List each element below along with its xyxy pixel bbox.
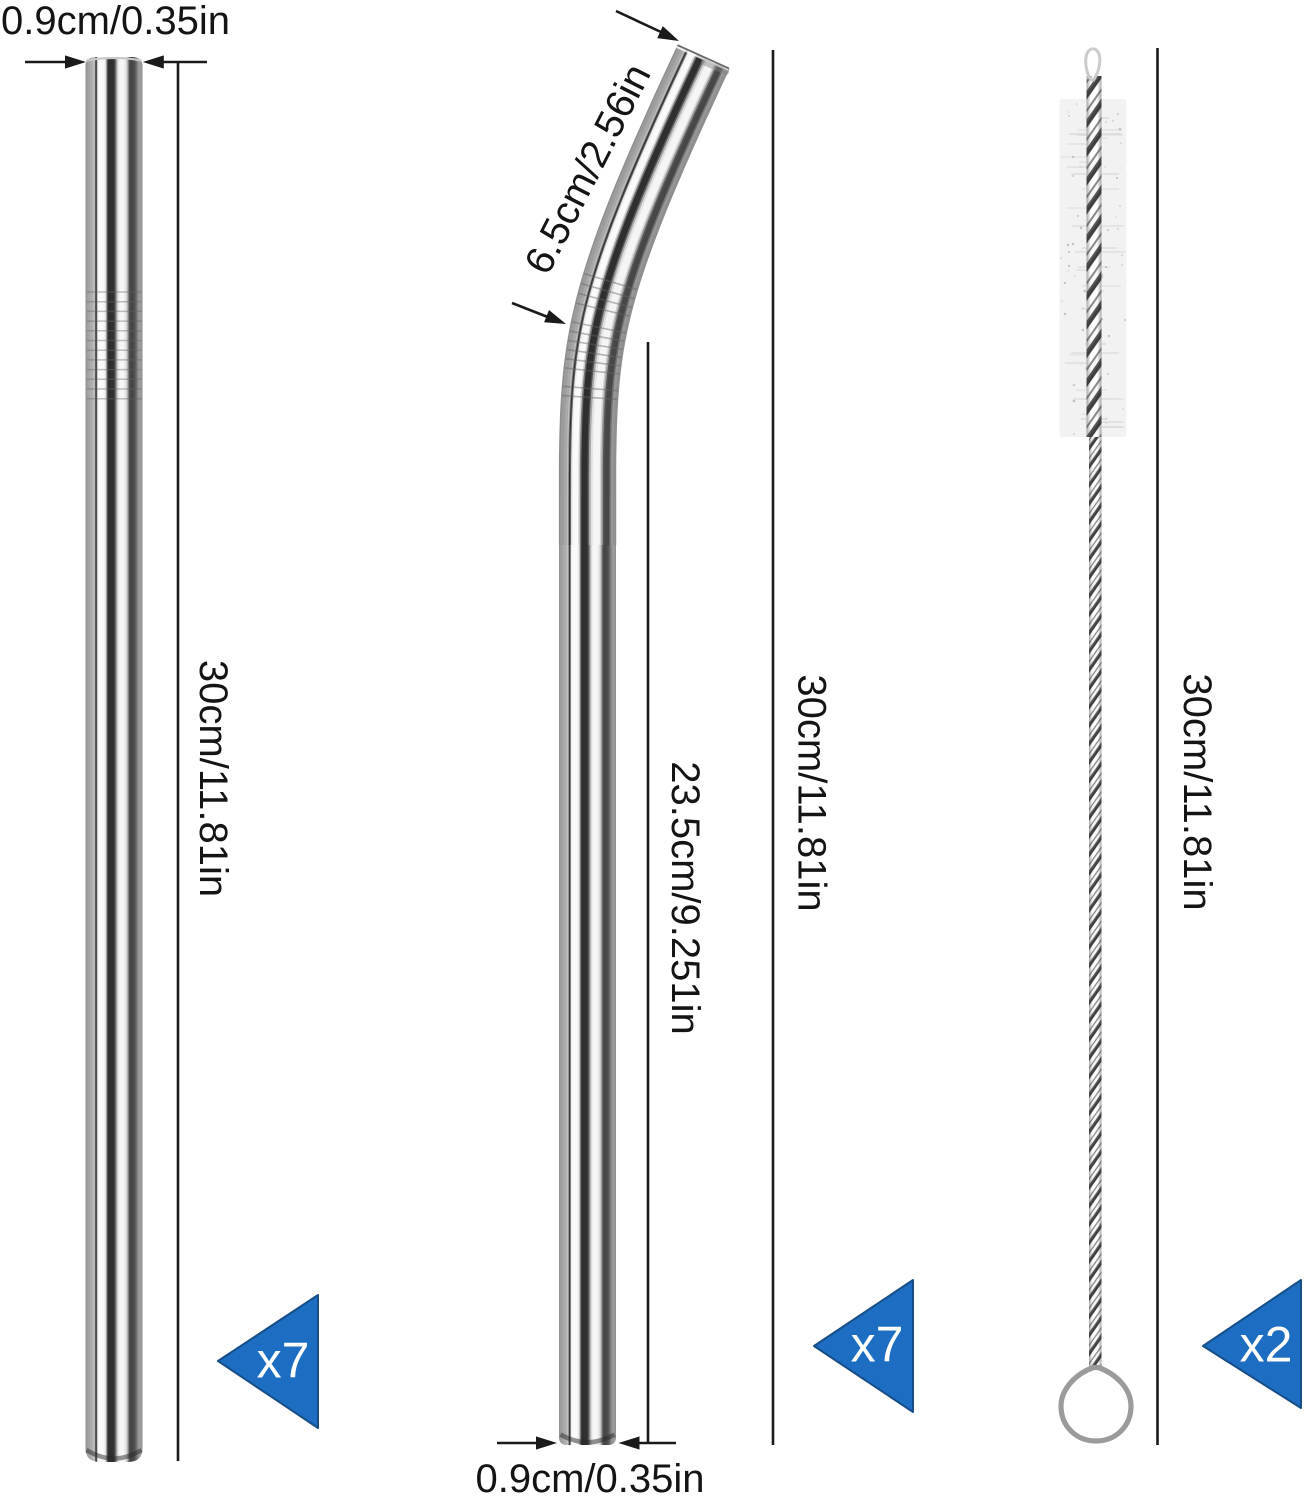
svg-text:30cm/11.81in: 30cm/11.81in [1175, 673, 1219, 910]
svg-text:30cm/11.81in: 30cm/11.81in [191, 660, 235, 897]
svg-text:0.9cm/0.35in: 0.9cm/0.35in [475, 1457, 704, 1500]
svg-text:x7: x7 [257, 1333, 310, 1389]
svg-text:30cm/11.81in: 30cm/11.81in [790, 674, 834, 911]
svg-text:x2: x2 [1240, 1317, 1293, 1373]
svg-text:x7: x7 [851, 1317, 904, 1373]
svg-text:23.5cm/9.251in: 23.5cm/9.251in [663, 761, 707, 1035]
svg-text:0.9cm/0.35in: 0.9cm/0.35in [1, 0, 230, 43]
